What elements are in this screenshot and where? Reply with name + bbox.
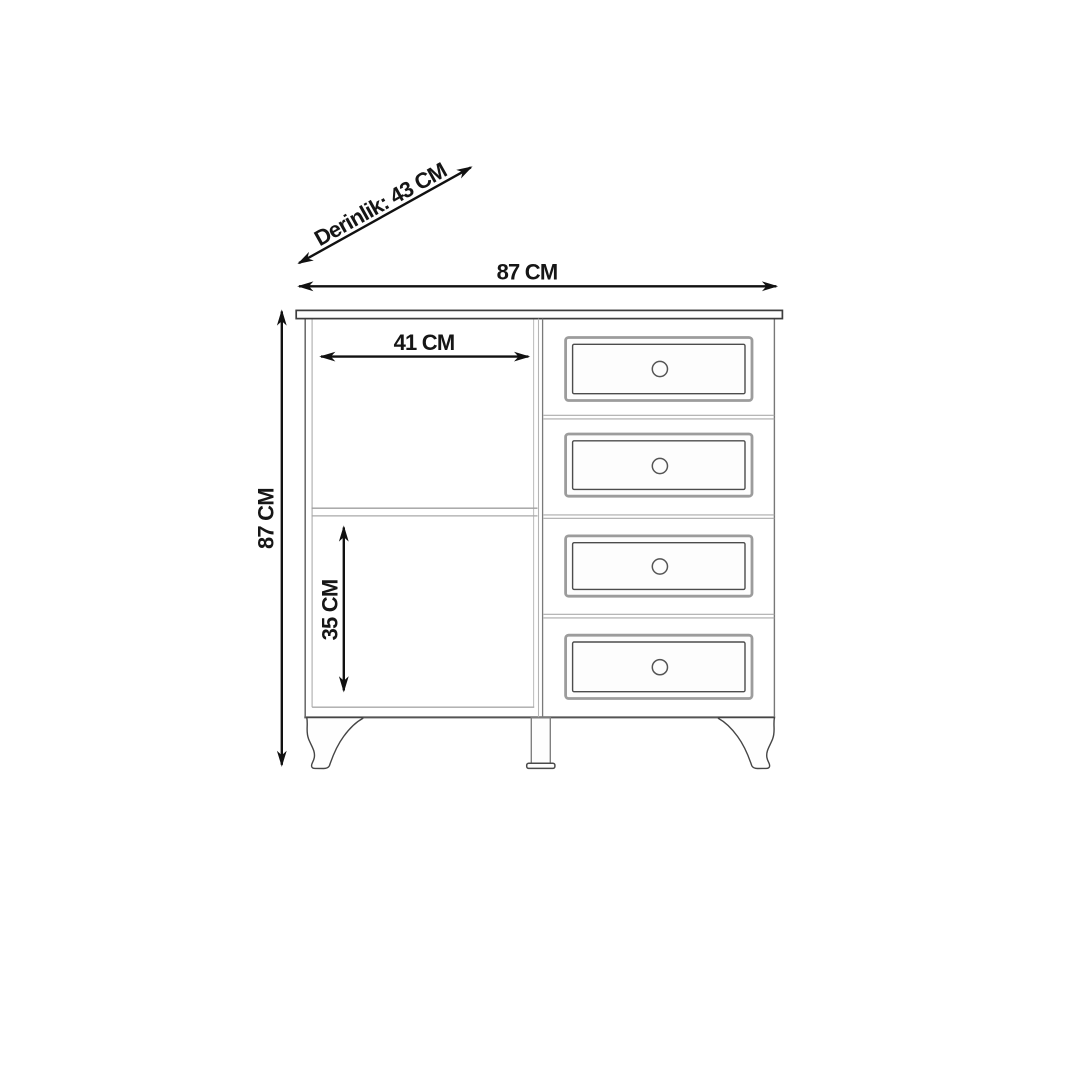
svg-text:87 CM: 87 CM <box>497 260 558 285</box>
svg-text:41 CM: 41 CM <box>394 330 455 355</box>
svg-text:87 CM: 87 CM <box>254 488 279 549</box>
svg-text:35 CM: 35 CM <box>317 580 342 641</box>
svg-text:Derinlik: 43 CM: Derinlik: 43 CM <box>310 158 451 251</box>
